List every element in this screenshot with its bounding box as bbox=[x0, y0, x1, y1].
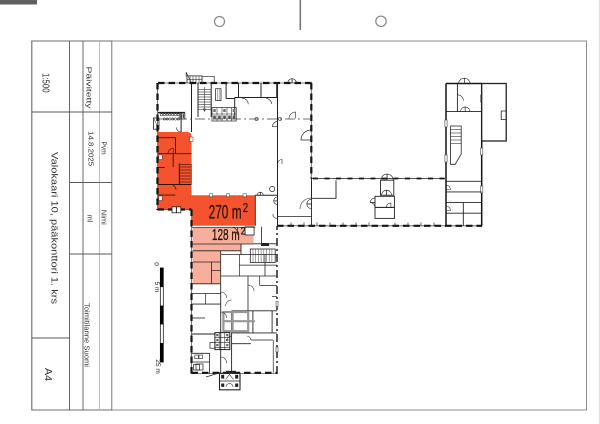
svg-text:5 m: 5 m bbox=[153, 282, 160, 293]
svg-text:270 m: 270 m bbox=[209, 202, 242, 224]
svg-text:Valokaari 10, pääkonttori 1. k: Valokaari 10, pääkonttori 1. krs bbox=[50, 152, 60, 304]
svg-text:ml: ml bbox=[86, 215, 95, 223]
svg-text:2: 2 bbox=[243, 200, 248, 215]
svg-text:Pvm: Pvm bbox=[99, 142, 108, 155]
svg-text:1:500: 1:500 bbox=[39, 73, 50, 93]
svg-text:0: 0 bbox=[152, 262, 159, 266]
svg-text:Toimitilanne Suomi: Toimitilanne Suomi bbox=[82, 303, 91, 367]
svg-text:25 m: 25 m bbox=[154, 359, 161, 373]
svg-text:A4: A4 bbox=[42, 368, 53, 381]
svg-text:Nimi: Nimi bbox=[99, 210, 108, 225]
svg-text:Päivitetty: Päivitetty bbox=[85, 67, 94, 109]
svg-text:14.8.2025: 14.8.2025 bbox=[87, 131, 96, 166]
svg-text:128 m: 128 m bbox=[212, 227, 240, 244]
